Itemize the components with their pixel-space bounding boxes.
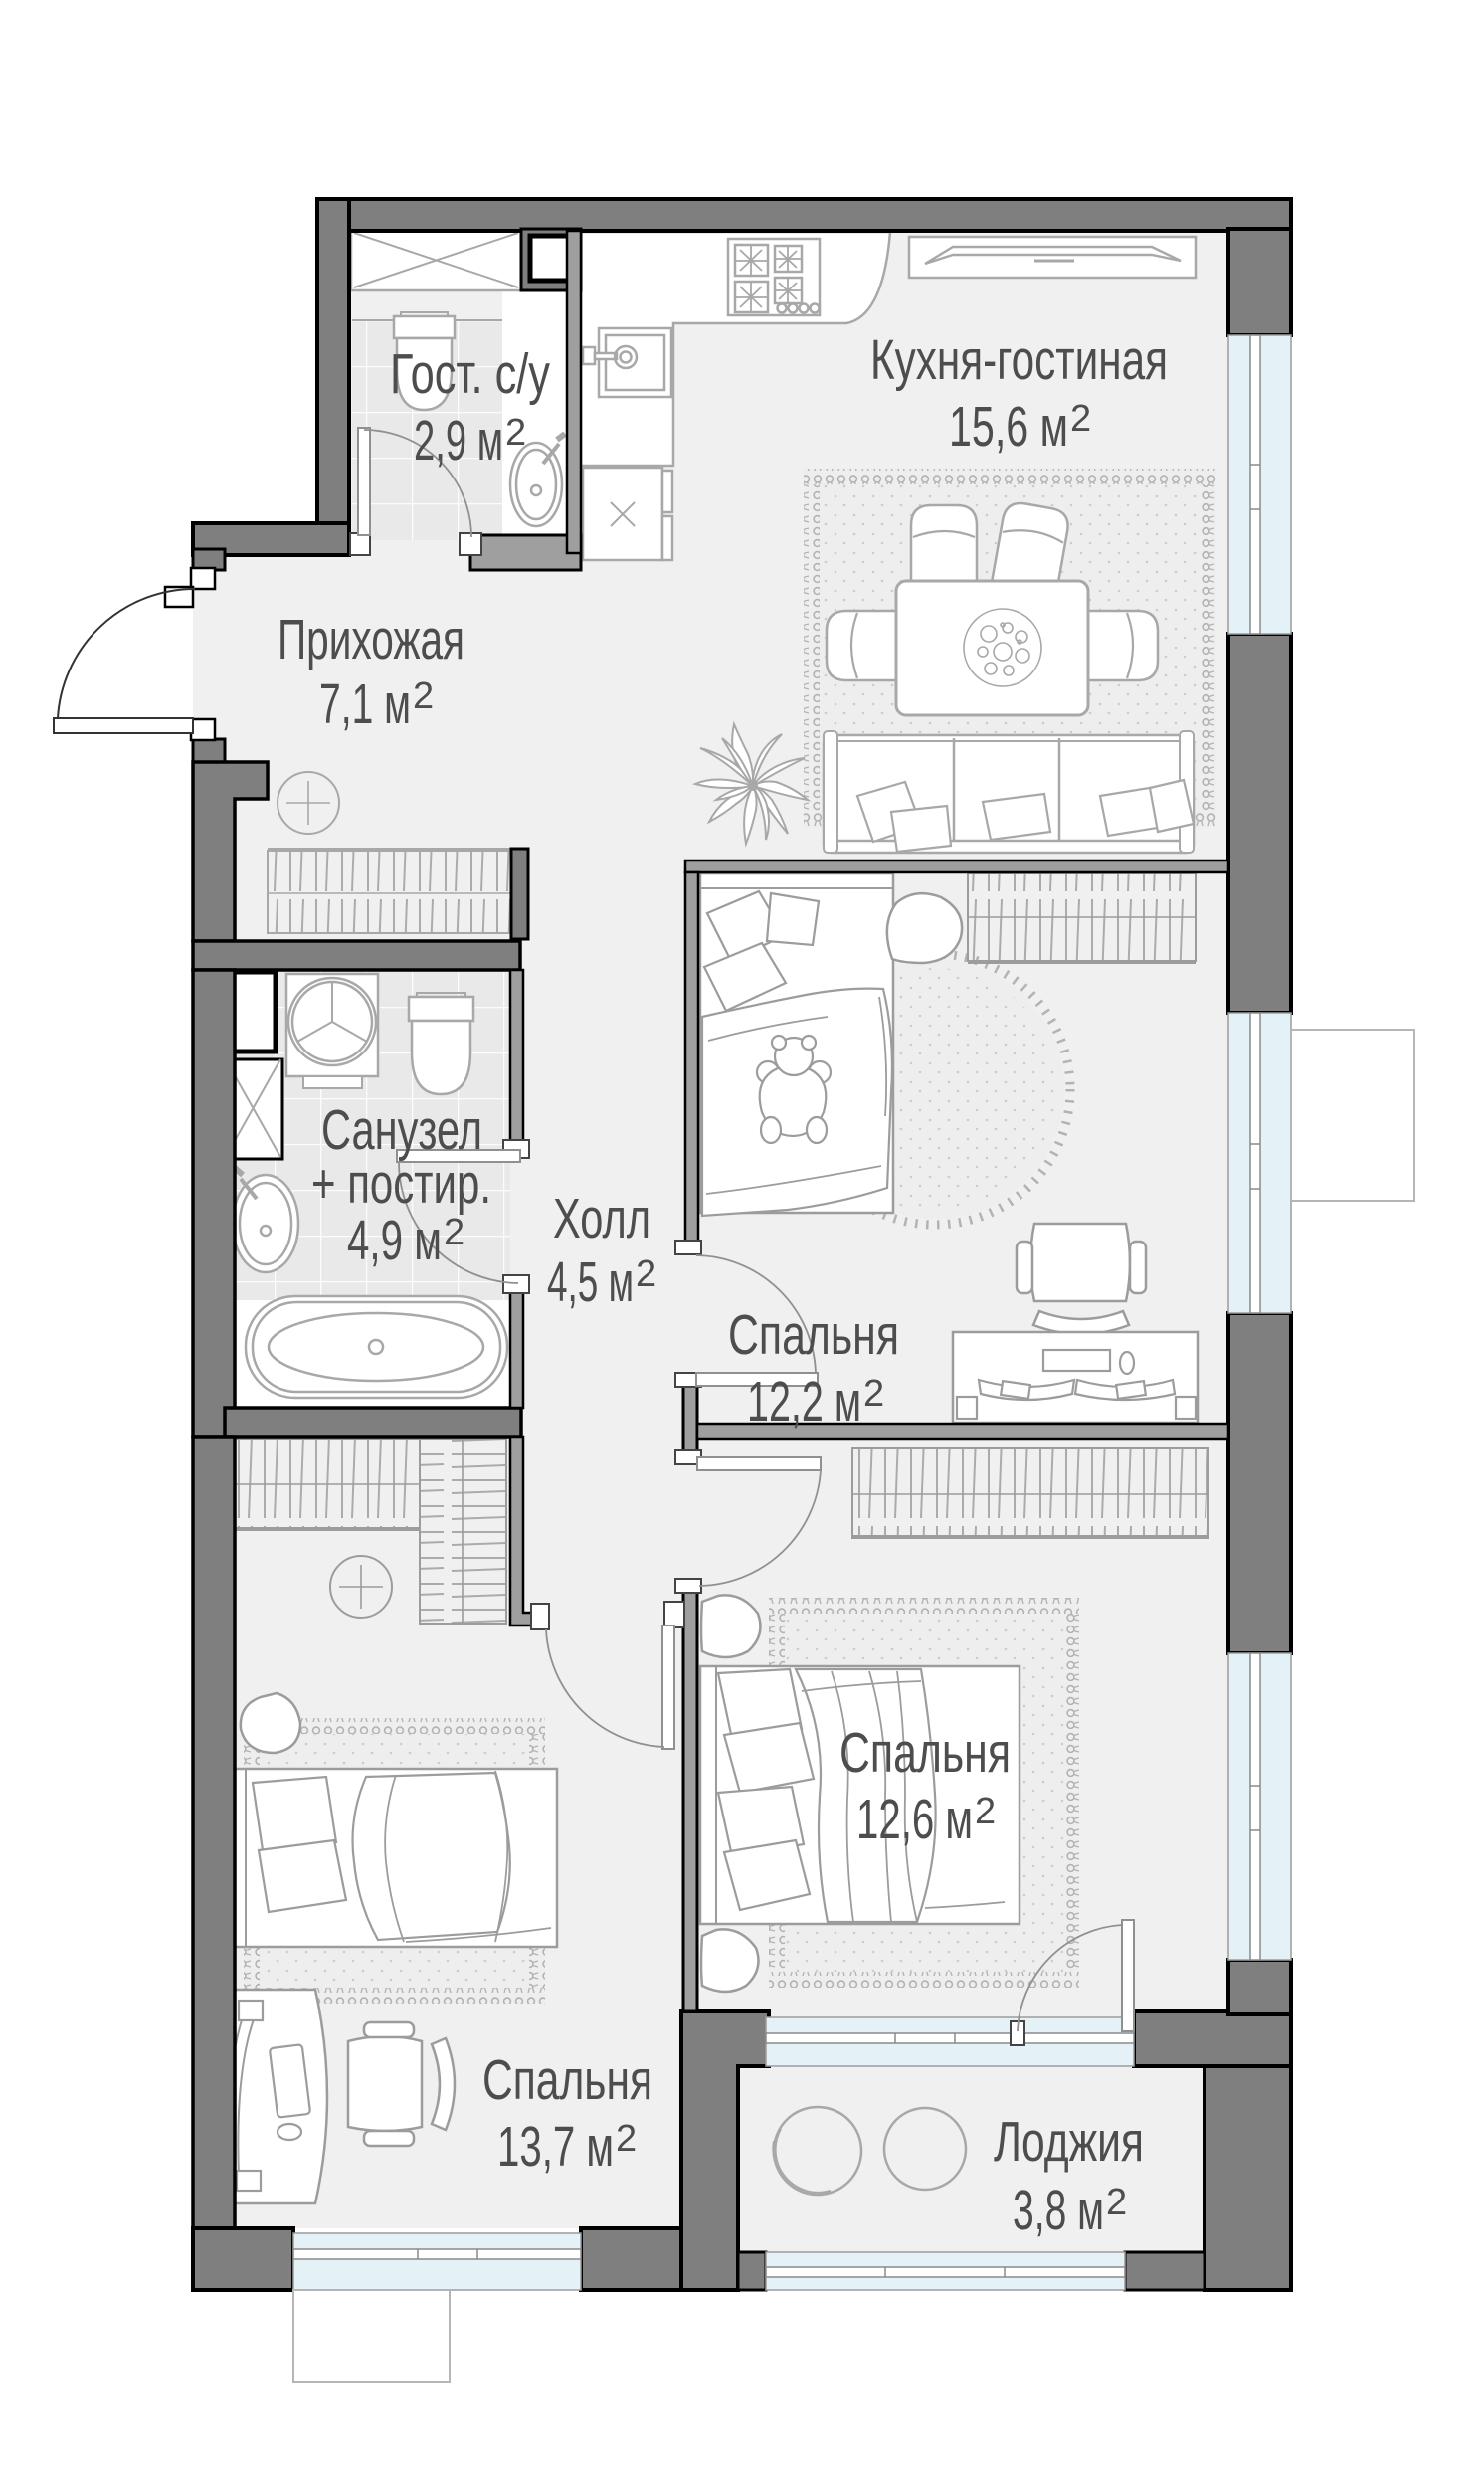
svg-text:2: 2	[975, 1791, 996, 1832]
svg-text:15,6 м: 15,6 м	[949, 395, 1068, 459]
svg-text:Спальня: Спальня	[728, 1303, 899, 1367]
svg-text:7,1 м: 7,1 м	[319, 672, 411, 736]
svg-text:Кухня-гостиная: Кухня-гостиная	[870, 328, 1168, 392]
svg-text:3,8 м: 3,8 м	[1013, 2179, 1104, 2242]
svg-text:12,2 м: 12,2 м	[747, 1370, 861, 1434]
svg-text:2: 2	[444, 1212, 464, 1253]
svg-text:2: 2	[616, 2118, 637, 2160]
svg-text:2: 2	[636, 1253, 656, 1295]
svg-text:2: 2	[863, 1373, 884, 1415]
svg-text:Гост. с/у: Гост. с/у	[390, 342, 550, 406]
svg-text:Холл: Холл	[553, 1187, 650, 1250]
svg-text:+ постир.: + постир.	[311, 1152, 491, 1216]
svg-text:Прихожая: Прихожая	[278, 608, 464, 671]
svg-text:2: 2	[413, 675, 434, 717]
svg-text:13,7 м: 13,7 м	[497, 2115, 614, 2179]
svg-text:Лоджия: Лоджия	[994, 2110, 1144, 2174]
svg-text:Спальня: Спальня	[839, 1721, 1011, 1785]
svg-text:2: 2	[1106, 2182, 1127, 2223]
svg-text:2: 2	[505, 412, 526, 454]
svg-text:2,9 м: 2,9 м	[414, 409, 503, 473]
svg-text:2: 2	[1070, 398, 1091, 440]
svg-text:Спальня: Спальня	[482, 2048, 652, 2112]
svg-text:12,6 м: 12,6 м	[856, 1788, 973, 1851]
svg-text:4,5 м: 4,5 м	[547, 1250, 634, 1314]
svg-text:4,9 м: 4,9 м	[347, 1209, 442, 1272]
